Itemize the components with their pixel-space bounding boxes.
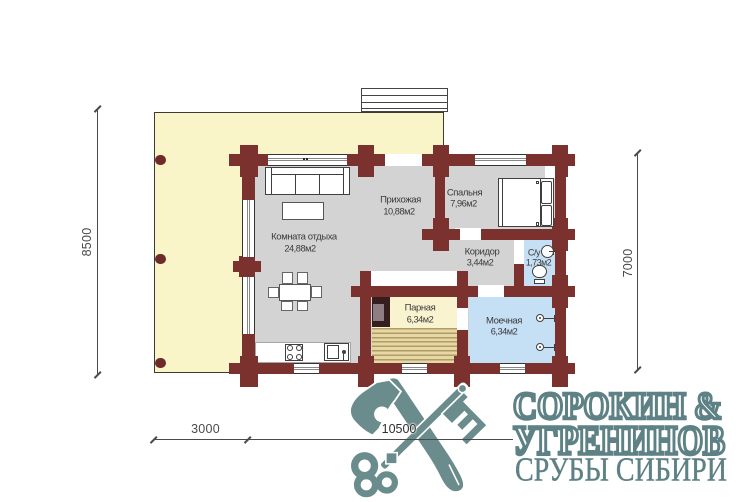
svg-text:СРУБЫ СИБИРИ: СРУБЫ СИБИРИ [515,452,727,489]
